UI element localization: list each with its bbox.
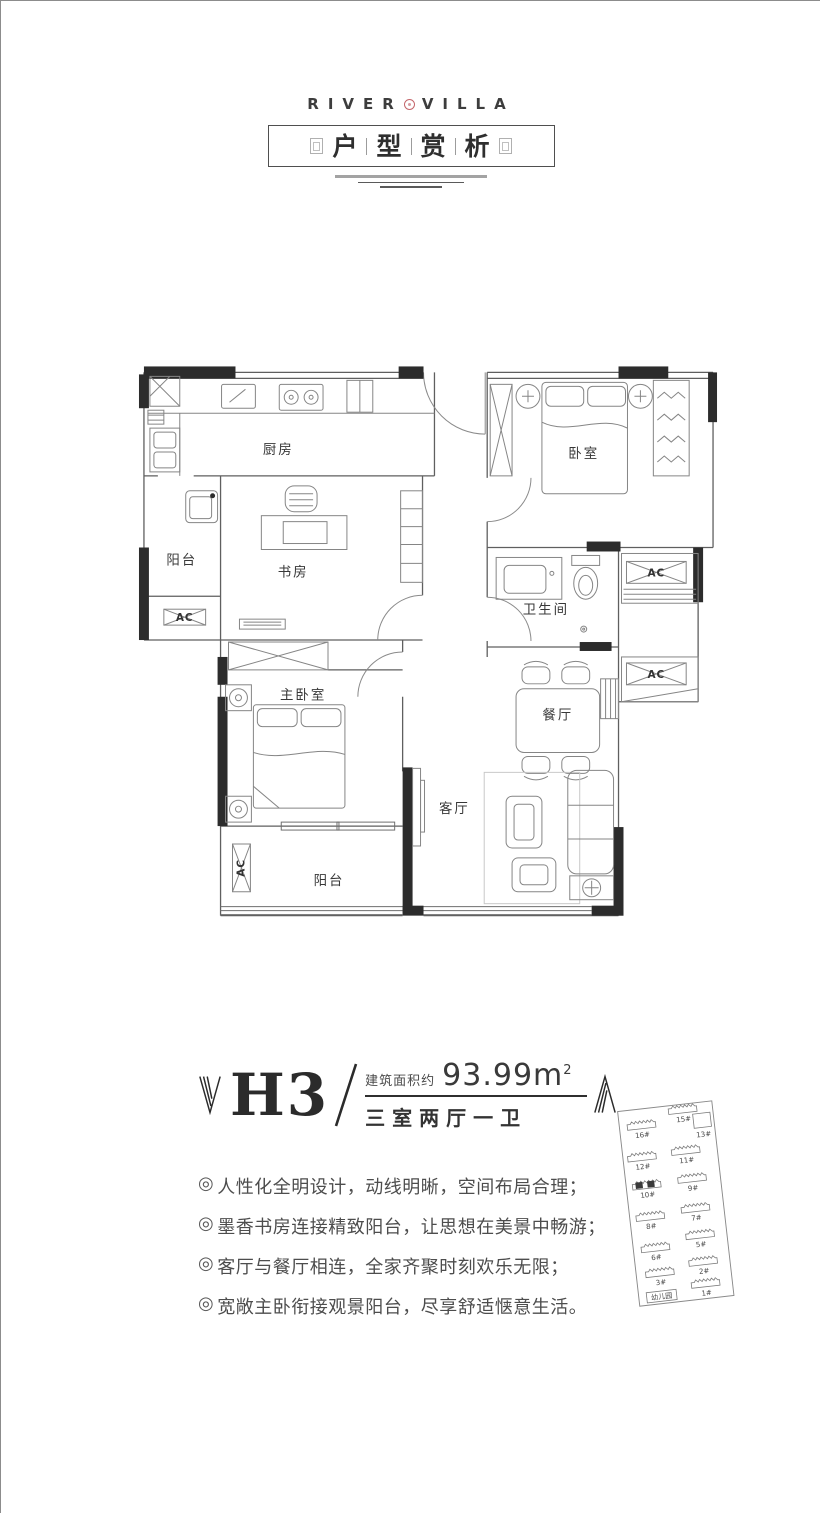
unit-summary: H3 建筑面积约 93.99m 2 三室两厅一卫 bbox=[198, 1058, 617, 1131]
title-char: 户 bbox=[332, 134, 357, 159]
title-char: 析 bbox=[465, 134, 490, 159]
site-map-drawing: 16# 15# 13# 12# 11# 10# 9# 8# 7# 6# 5# 3… bbox=[616, 1099, 736, 1308]
brand-title: RIVER VILLA bbox=[307, 97, 514, 112]
area-prefix: 建筑面积约 bbox=[365, 1070, 435, 1089]
building-16 bbox=[627, 1119, 656, 1130]
area-row: 建筑面积约 93.99m 2 bbox=[365, 1058, 587, 1093]
floor-plan-drawing: 厨房 阳台 书房 卧室 卫生间 主卧室 餐厅 客厅 阳台 AC AC AC AC bbox=[134, 358, 721, 936]
bullet-icon: ◎ bbox=[198, 1293, 214, 1314]
header: RIVER VILLA 户 型 赏 析 bbox=[1, 97, 820, 188]
building-5 bbox=[685, 1229, 714, 1240]
site-map: 16# 15# 13# 12# 11# 10# 9# 8# 7# 6# 5# 3… bbox=[616, 1099, 736, 1312]
building-label: 15# bbox=[676, 1114, 692, 1125]
floor-plan: 厨房 阳台 书房 卧室 卫生间 主卧室 餐厅 客厅 阳台 AC AC AC AC bbox=[134, 358, 721, 940]
unit-divider bbox=[365, 1095, 587, 1097]
divider bbox=[455, 138, 456, 155]
ac-label: AC bbox=[176, 612, 194, 624]
feature-item: ◎ 客厅与餐厅相连，全家齐聚时刻欢乐无限； bbox=[198, 1253, 606, 1279]
feature-text: 宽敞主卧衔接观景阳台，尽享舒适惬意生活。 bbox=[217, 1293, 587, 1319]
room-label-kitchen: 厨房 bbox=[263, 442, 294, 458]
bullet-icon: ◎ bbox=[198, 1213, 214, 1234]
slash-divider bbox=[333, 1062, 359, 1128]
divider bbox=[411, 138, 412, 155]
unit-layout: 三室两厅一卫 bbox=[365, 1102, 587, 1131]
page-title: 户 型 赏 析 bbox=[268, 125, 555, 167]
room-label-master-bedroom: 主卧室 bbox=[280, 687, 326, 704]
door-arcs bbox=[358, 372, 531, 696]
building-label: 5# bbox=[695, 1239, 706, 1249]
room-label-dining: 餐厅 bbox=[542, 708, 573, 724]
bullet-icon: ◎ bbox=[198, 1173, 214, 1194]
building-12 bbox=[627, 1151, 656, 1162]
building-label: 7# bbox=[691, 1213, 702, 1223]
feature-text: 墨香书房连接精致阳台，让思想在美景中畅游； bbox=[217, 1213, 606, 1239]
building-3 bbox=[645, 1267, 674, 1278]
ac-label: AC bbox=[647, 567, 665, 579]
unit-name: H3 bbox=[230, 1064, 329, 1126]
building-13 bbox=[693, 1112, 712, 1128]
divider bbox=[366, 138, 367, 155]
feature-text: 客厅与餐厅相连，全家齐聚时刻欢乐无限； bbox=[217, 1253, 569, 1279]
title-char: 型 bbox=[376, 134, 401, 159]
area-superscript: 2 bbox=[563, 1063, 571, 1078]
building-label: 2# bbox=[698, 1266, 709, 1276]
feature-item: ◎ 墨香书房连接精致阳台，让思想在美景中畅游； bbox=[198, 1213, 606, 1239]
building-label: 13# bbox=[696, 1129, 712, 1140]
building-2 bbox=[688, 1255, 717, 1266]
bullet-icon: ◎ bbox=[198, 1253, 214, 1274]
room-label-bedroom: 卧室 bbox=[568, 445, 599, 462]
building-9 bbox=[677, 1172, 706, 1183]
room-label-living: 客厅 bbox=[439, 800, 470, 817]
brand-left: RIVER bbox=[307, 97, 403, 112]
building-11 bbox=[671, 1144, 700, 1155]
room-label-bathroom: 卫生间 bbox=[523, 602, 569, 618]
feature-text: 人性化全明设计，动线明晰，空间布局合理； bbox=[217, 1173, 587, 1199]
building-label: 12# bbox=[635, 1161, 651, 1172]
building-label: 16# bbox=[635, 1130, 651, 1141]
building-label: 8# bbox=[646, 1221, 657, 1231]
feature-item: ◎ 人性化全明设计，动线明晰，空间布局合理； bbox=[198, 1173, 606, 1199]
building-7 bbox=[681, 1202, 710, 1213]
building-label: 9# bbox=[687, 1183, 698, 1193]
title-char: 赏 bbox=[421, 134, 446, 159]
seal-icon bbox=[310, 138, 323, 154]
room-label-balcony-lower: 阳台 bbox=[314, 873, 345, 889]
building-label: 10# bbox=[640, 1189, 656, 1200]
bearing-walls bbox=[139, 366, 717, 915]
zigzag-right-icon bbox=[593, 1072, 617, 1118]
brand-right: VILLA bbox=[422, 97, 515, 112]
building-label: 1# bbox=[701, 1288, 712, 1298]
building-label: 11# bbox=[679, 1155, 695, 1166]
building-label: 6# bbox=[651, 1252, 662, 1262]
building-6 bbox=[641, 1242, 670, 1253]
decorative-lines bbox=[335, 175, 487, 188]
ac-label: AC bbox=[235, 859, 247, 877]
feature-item: ◎ 宽敞主卧衔接观景阳台，尽享舒适惬意生活。 bbox=[198, 1293, 606, 1319]
room-label-study: 书房 bbox=[278, 564, 309, 580]
room-label-balcony-upper: 阳台 bbox=[166, 552, 197, 568]
area-value: 93.99m bbox=[442, 1058, 563, 1093]
seal-icon bbox=[499, 138, 512, 154]
building-1 bbox=[691, 1277, 720, 1288]
brand-seal-icon bbox=[404, 99, 415, 110]
unit-info: 建筑面积约 93.99m 2 三室两厅一卫 bbox=[365, 1058, 587, 1131]
building-8 bbox=[636, 1210, 665, 1221]
flyer-page: RIVER VILLA 户 型 赏 析 bbox=[0, 0, 820, 1513]
feature-list: ◎ 人性化全明设计，动线明晰，空间布局合理； ◎ 墨香书房连接精致阳台，让思想在… bbox=[198, 1173, 606, 1333]
building-label: 3# bbox=[655, 1277, 666, 1287]
zigzag-left-icon bbox=[198, 1072, 222, 1118]
ac-label: AC bbox=[647, 669, 665, 681]
